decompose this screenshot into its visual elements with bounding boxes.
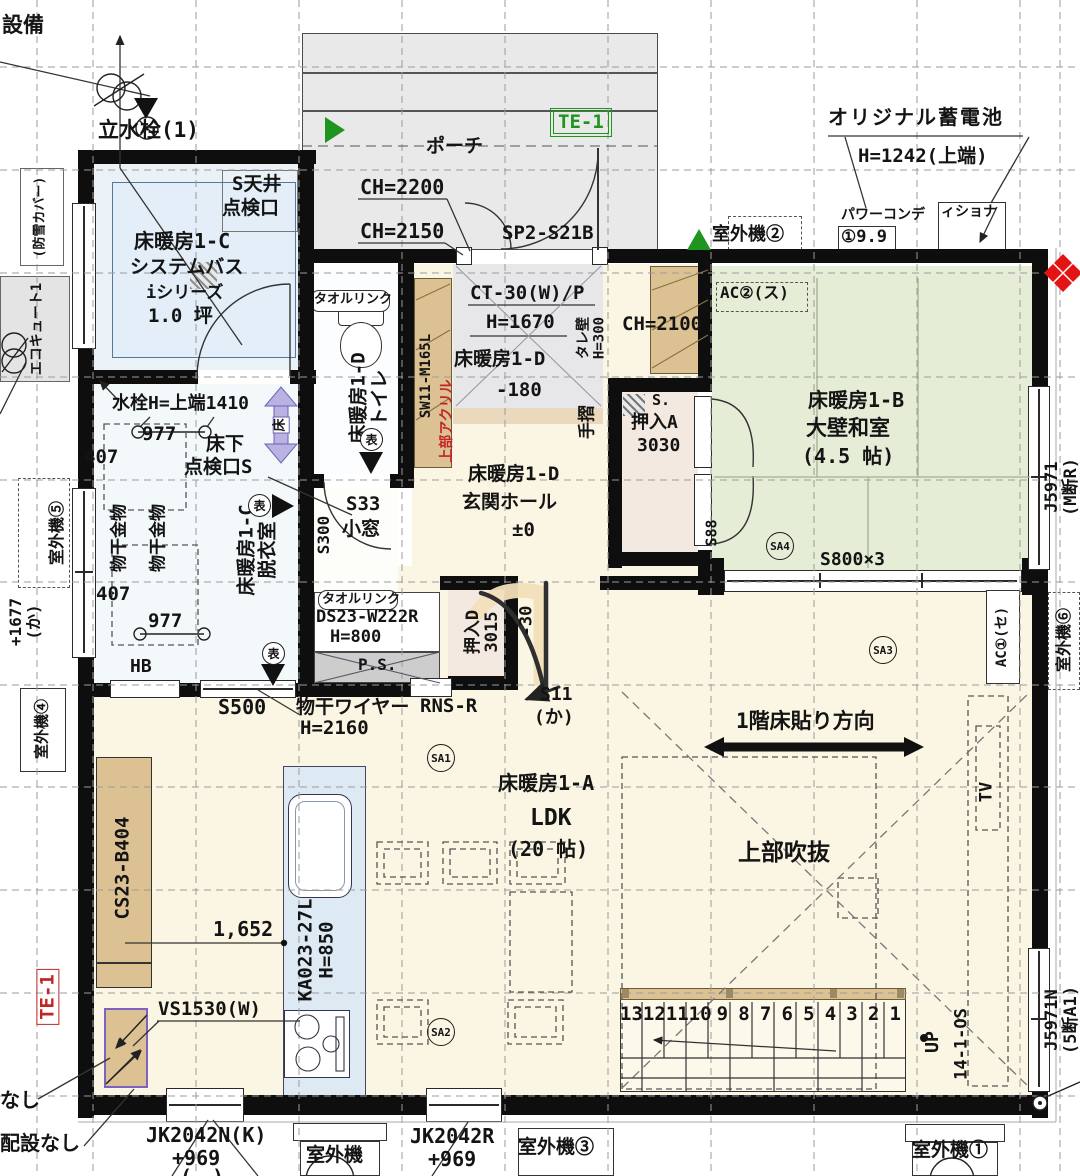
vs-arrows	[106, 1016, 146, 1084]
te1-red-tag: TE-1	[36, 969, 59, 1025]
ct30-label: CT-30(W)/P	[470, 283, 584, 304]
jr-name-label: 大壁和室	[806, 417, 890, 441]
h1670-label: H=1670	[486, 312, 555, 333]
stair-step-6: 6	[776, 1004, 798, 1034]
stair-step-11: 11	[666, 1004, 689, 1034]
omote-arrow-down-2-icon	[261, 664, 285, 686]
hb-label: HB	[130, 657, 152, 677]
tarekabe-label: タレ壁H=300	[576, 317, 607, 359]
power-conditioner-2: ィショナ	[941, 205, 997, 221]
entry-door-model: SP2-S21B	[502, 223, 594, 244]
tv-label: TV	[977, 782, 996, 802]
dim-977-b: 977	[148, 611, 182, 632]
hall-heating-label: 床暖房1-D	[468, 464, 559, 485]
haisetsu-nashi-label: 配設なし	[0, 1132, 80, 1154]
ecocute-label: エコキュート1	[30, 283, 46, 375]
stair-step-2: 2	[863, 1004, 885, 1034]
stairs-code-label: 14-1-OS	[952, 1008, 971, 1080]
bath-ceiling-access-1: S天井	[232, 174, 281, 195]
ch2100-label: CH=2100	[622, 314, 702, 335]
omote-marker-2: 表	[248, 494, 271, 517]
stair-step-7: 7	[755, 1004, 777, 1034]
ac1-label: AC①(セ)	[995, 607, 1011, 667]
outdoor-unit-c-label: 室外機	[306, 1145, 363, 1166]
jr-size-label: (4.5 帖)	[802, 445, 894, 467]
stair-step-4: 4	[820, 1004, 842, 1034]
hall-level-label: ±0	[512, 520, 535, 541]
floor-plan: 設備 立水栓(1) ポーチ TE-1 CH=2200 CH=2150 SP2-S…	[0, 0, 1080, 1176]
washroom-name-label: 床暖房1-C脱衣室	[237, 504, 280, 595]
bath-ceiling-access-2: 点検口	[222, 198, 279, 219]
void-above-label: 上部吹抜	[738, 841, 830, 867]
standpipe-label: 立水栓(1)	[98, 119, 199, 143]
sa4-marker: SA4	[766, 532, 794, 560]
laundry-wire-height: H=2160	[300, 718, 369, 739]
s33-label: S33	[346, 494, 380, 515]
rns-label: RNS-R	[420, 696, 477, 717]
acrylic-note: 上部アクリル	[440, 379, 456, 462]
stair-step-8: 8	[733, 1004, 755, 1034]
cs23-cabinet-label: CS23-B404	[112, 817, 133, 920]
battery-label: オリジナル蓄電池	[828, 106, 1004, 128]
s300-label: S300	[315, 516, 333, 555]
floor-direction-label: 1階床貼り方向	[736, 710, 875, 734]
ps-label: P.S.	[358, 656, 397, 674]
kitchen-model-label: KA023-27LH=850	[296, 899, 339, 1002]
outdoor-unit4-label: 室外機④	[34, 699, 51, 759]
ac2-label: AC②(ス)	[720, 284, 789, 302]
equipment-label: 設備	[2, 14, 44, 38]
green-triangle-porch-icon	[325, 117, 345, 143]
ldk-size-label: (20 帖)	[508, 838, 588, 860]
green-triangle-right-icon	[687, 229, 711, 250]
underfloor-access-1: 床下	[206, 434, 244, 455]
doma-level-label: -180	[496, 380, 542, 401]
ch2150-label: CH=2150	[360, 220, 444, 242]
stair-step-9: 9	[712, 1004, 734, 1034]
dim-1652-label: 1,652	[213, 918, 273, 940]
omote-marker-1: 表	[360, 428, 383, 451]
sa1-marker: SA1	[427, 744, 455, 772]
height-1677-label: +1677(か)	[7, 598, 43, 646]
s500-label: S500	[218, 696, 266, 718]
dim-407-b: 407	[96, 584, 130, 605]
dim-977-a: 977	[142, 424, 176, 445]
underfloor-access-2: 点検口S	[184, 457, 252, 478]
handrail-label: 手摺	[578, 405, 597, 439]
ch2200-label: CH=2200	[360, 176, 444, 198]
jr-heating-label: 床暖房1-B	[808, 389, 904, 411]
omote-arrow-down-1-icon	[359, 452, 383, 474]
floor-direction-arrow-icon	[704, 737, 924, 757]
jk2042n-paren: ( )	[180, 1166, 224, 1176]
floor-level-char: 床	[273, 416, 290, 433]
stair-step-1: 1	[884, 1004, 906, 1034]
stair-step-12: 12	[643, 1004, 666, 1034]
outdoor-unit2-label: 室外機②	[712, 225, 784, 245]
jk2042n-label: JK2042N(K)	[146, 1124, 266, 1146]
bath-name-label: システムバス	[130, 257, 243, 278]
s88-label: S88	[704, 519, 721, 546]
laundry-hanger-1: 物干金物	[110, 504, 129, 572]
stairs-numbers: 13121110987654321	[620, 1004, 906, 1034]
battery-height: H=1242(上端)	[858, 146, 988, 167]
j5971n-label: J5971N(5断A1)	[1043, 986, 1080, 1054]
sa2-marker: SA2	[427, 1018, 455, 1046]
oshiire-a-s-label: S.	[652, 392, 670, 409]
bath-size-label: 1.0 坪	[148, 306, 213, 327]
laundry-wire-label: 物干ワイヤー	[296, 697, 409, 718]
hall-name-label: 玄関ホール	[462, 492, 557, 513]
snow-cover-label: (防雪カバー)	[34, 177, 49, 258]
bath-heating-label: 床暖房1-C	[134, 230, 230, 252]
vanity-towel-ring-label: タオルリンク	[322, 593, 400, 608]
porch-label: ポーチ	[426, 136, 483, 157]
s11-label: S11	[540, 685, 573, 705]
faucet-height-label: 水栓H=上端1410	[112, 394, 249, 414]
oshiire-a-size: 3030	[637, 436, 680, 456]
vanity-height-label: H=800	[330, 628, 381, 647]
stair-step-13: 13	[620, 1004, 643, 1034]
nashi-label: なし	[0, 1089, 40, 1111]
stair-step-3: 3	[841, 1004, 863, 1034]
outdoor-unit1-label: 室外機①	[912, 1140, 988, 1161]
s11-sub-label: (か)	[534, 708, 574, 728]
dim-407-a: 407	[84, 447, 118, 468]
toilet-towel-ring-label: タオルリンク	[314, 293, 392, 308]
stair-step-5: 5	[798, 1004, 820, 1034]
vanity-model-label: DS23-W222R	[316, 608, 418, 627]
s800-label: S800×3	[820, 550, 885, 570]
komado-label: 小窓	[342, 519, 380, 540]
minus30-label: -30	[517, 606, 536, 637]
vs1530-label: VS1530(W)	[158, 999, 261, 1020]
ldk-heating-label: 床暖房1-A	[498, 772, 594, 794]
jk2042r-height: +969	[428, 1148, 476, 1170]
oshiire-a-label: 押入A	[631, 413, 678, 433]
toilet-window-model: SW11-M165L	[419, 334, 435, 418]
oshiire-d-label: 押入D3015	[464, 610, 502, 654]
stair-step-10: 10	[689, 1004, 712, 1034]
stairs-up-label: UP	[923, 1031, 943, 1053]
jk2042r-label: JK2042R	[410, 1125, 494, 1147]
doma-heating-label: 床暖房1-D	[454, 349, 545, 370]
interior-thin-lines	[295, 266, 1030, 1071]
outdoor-unit3-label: 室外機③	[518, 1137, 594, 1158]
bath-series-label: iシリーズ	[146, 284, 223, 303]
sa3-marker: SA3	[869, 636, 897, 664]
outdoor-unit5-label: 室外機⑤	[48, 501, 66, 565]
ldk-name-label: LDK	[530, 806, 572, 832]
power-conditioner-1: パワーコンデ	[841, 208, 925, 224]
power-conditioner-value: ①9.9	[841, 228, 887, 247]
omote-marker-3: 表	[262, 642, 285, 665]
outdoor-unit6-label: 室外機⑥	[1055, 608, 1073, 672]
j5971-label: J5971(M断R)	[1043, 458, 1080, 516]
te1-green-tag: TE-1	[553, 111, 609, 134]
laundry-hanger-2: 物干金物	[149, 504, 168, 572]
